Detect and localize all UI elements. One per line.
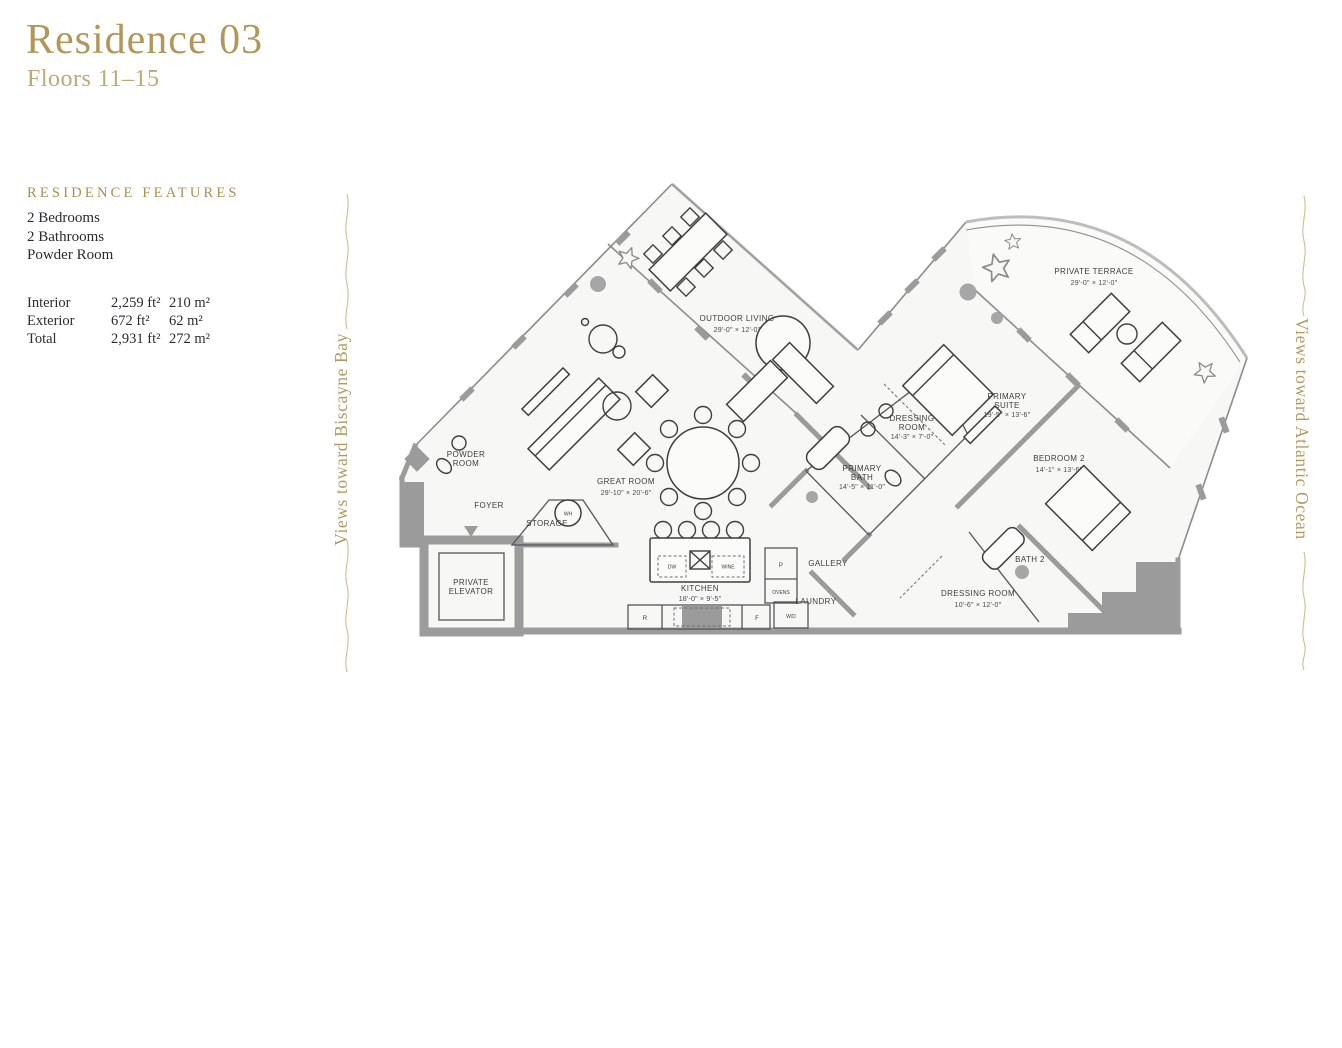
room-label-powder: POWDER [447,450,485,459]
room-dims-primary-suite: 19'-5" × 13'-6" [984,412,1031,419]
planter-icon [1015,565,1029,579]
room-label-bath2: BATH 2 [1015,555,1045,564]
room-label-primary-suite2: SUITE [994,401,1020,410]
room-dims-private-terrace: 29'-0" × 12'-0" [1071,280,1118,287]
room-label-great-room: GREAT ROOM [597,477,655,486]
right-wave-ornament [1303,196,1305,670]
room-dims-great-room: 29'-10" × 20'-6" [601,490,652,497]
planter-icon [991,312,1003,324]
planter-icon [960,284,977,301]
room-label-bedroom2: BEDROOM 2 [1033,454,1085,463]
ovens-label: OVENS [772,590,790,596]
room-label-elevator2: ELEVATOR [449,587,494,596]
room-dims-dressing2: 10'-6" × 12'-0" [955,602,1002,609]
room-dims-bedroom2: 14'-1" × 13'-6" [1036,467,1083,474]
washer-dryer-label: W/D [786,614,796,620]
room-label-outdoor-living: OUTDOOR LIVING [700,314,775,323]
brochure-page: Residence 03 Floors 11–15 RESIDENCE FEAT… [0,0,1342,1048]
range-label: R [643,616,648,622]
room-label-gallery: GALLERY [808,559,848,568]
water-heater-label: WH [564,512,573,518]
pantry-label: P [779,563,783,569]
floor-plan: WH DW WINE R F [0,0,1342,1048]
room-dims-primary-bath: 14'-5" × 11'-0" [839,484,885,491]
room-label-elevator: PRIVATE [453,578,489,587]
left-wave-ornament [346,194,348,672]
planter-icon [806,491,818,503]
room-dims-kitchen: 18'-0" × 9'-5" [679,596,722,603]
room-label-kitchen: KITCHEN [681,584,719,593]
dishwasher-label: DW [668,565,677,571]
room-label-storage: STORAGE [526,519,568,528]
planter-icon [590,276,606,292]
room-label-laundry: LAUNDRY [796,597,837,606]
room-dims-outdoor-living: 29'-0" × 12'-0" [714,327,761,334]
room-dims-dressing1: 14'-3" × 7'-0" [891,434,934,441]
room-label-dressing1: DRESSING [890,414,935,423]
room-label-primary-bath: PRIMARY [842,464,881,473]
room-label-primary-bath2: BATH [851,473,873,482]
range-icon [682,606,722,628]
room-label-private-terrace: PRIVATE TERRACE [1054,267,1133,276]
room-label-dressing1b: ROOM [899,423,926,432]
room-label-dressing2: DRESSING ROOM [941,589,1015,598]
dining-table-icon [667,427,739,499]
wine-label: WINE [721,565,735,571]
room-label-powder2: ROOM [453,459,480,468]
room-label-primary-suite: PRIMARY [987,392,1026,401]
room-label-foyer: FOYER [474,501,504,510]
fridge-label: F [755,616,759,622]
